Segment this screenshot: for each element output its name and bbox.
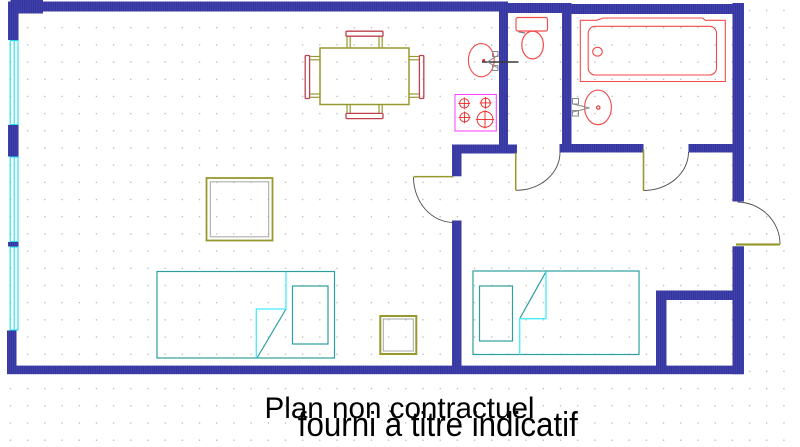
- svg-text:fourni à titre indicatif: fourni à titre indicatif: [298, 406, 579, 444]
